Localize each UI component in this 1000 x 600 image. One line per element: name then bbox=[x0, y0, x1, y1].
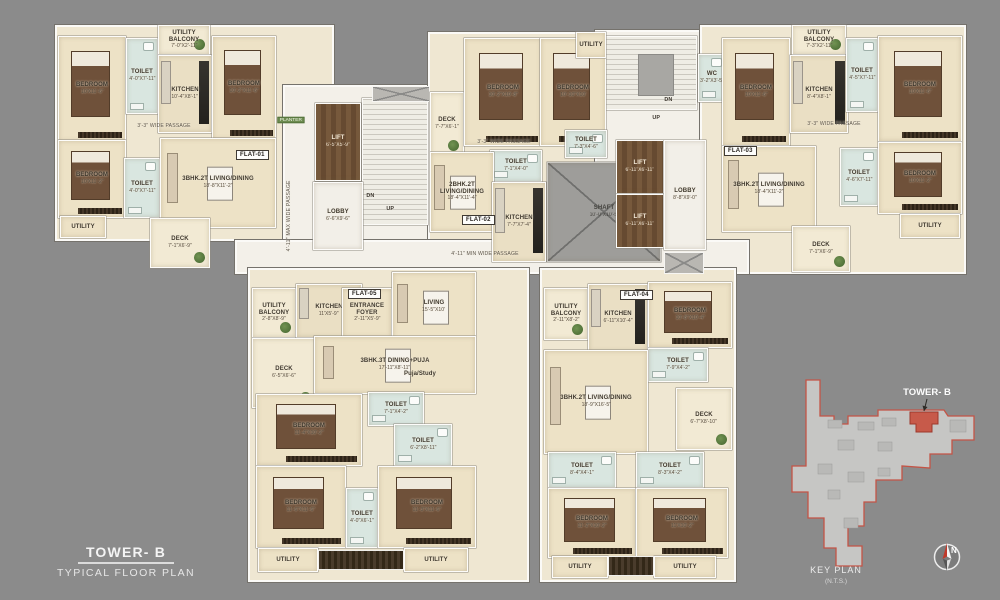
room-dims: 10'-4"X8'-1" bbox=[172, 95, 199, 101]
room-label: BEDROOM bbox=[293, 423, 325, 430]
room-label: UTILITY BALCONY bbox=[545, 304, 587, 318]
room-label: UTILITY bbox=[71, 224, 94, 231]
flat04-living-dining: 3BHK.2T LIVING/DINING 18'-9"X16'-5" bbox=[544, 350, 648, 454]
flat05-bedroom-3: BEDROOM 11'-3"X11'-6" bbox=[378, 466, 476, 548]
room-dims: 6'-5"X6'-6" bbox=[272, 374, 296, 380]
room-label: ENTRANCE FOYER bbox=[343, 303, 391, 317]
stair-landing bbox=[638, 54, 674, 96]
room-label: TOILET bbox=[571, 463, 593, 470]
flat05-bedroom-2: BEDROOM 11'-6"X11'-6" bbox=[256, 466, 346, 548]
room-label: TOILET bbox=[412, 438, 434, 445]
floor-plan-canvas: BEDROOM 10'X11'-6" TOILET 4'-0"X7'-11" U… bbox=[0, 0, 1000, 600]
room-dims: 18'-9"X16'-5" bbox=[581, 403, 610, 409]
room-dims: 15'-5"X10' bbox=[422, 308, 445, 314]
wardrobe-strip bbox=[318, 550, 404, 570]
flat03-utility: UTILITY bbox=[900, 214, 960, 238]
flat05-bedroom-1: BEDROOM 11'-4"X10'-2" bbox=[256, 394, 362, 466]
room-dims: 4'-0"X7'-11" bbox=[129, 189, 155, 195]
passage-label-left-vertical: 4'-11" MAX WIDE PASSAGE bbox=[286, 154, 291, 252]
room-dims: 18'-4"X11'-2" bbox=[754, 190, 783, 196]
room-dims: 18'-8"X11'-2" bbox=[203, 184, 232, 190]
flat01-deck: DECK 7'-1"X6'-9" bbox=[150, 218, 210, 268]
flat04-utility-2: UTILITY bbox=[654, 556, 716, 578]
room-dims: 6'-5"X5'-9" bbox=[326, 143, 350, 149]
room-dims: 10'X11'-2" bbox=[909, 179, 932, 185]
title-block: TOWER- B TYPICAL FLOOR PLAN bbox=[36, 544, 216, 579]
room-label: WC bbox=[707, 71, 717, 78]
passage-label-center-wing: 3'-3" WIDE PASSAGE bbox=[460, 139, 548, 144]
room-label: LIFT bbox=[633, 214, 646, 221]
room-label: BEDROOM bbox=[557, 85, 589, 92]
lift-1: LIFT 6'-5"X5'-9" bbox=[315, 103, 361, 181]
flat04-utility-1: UTILITY bbox=[552, 556, 608, 578]
room-label: UTILITY bbox=[918, 223, 941, 230]
page-title: TOWER- B bbox=[78, 544, 174, 564]
room-dims: 6'-11"X10'-4" bbox=[603, 319, 632, 325]
flat04-toilet-3: TOILET 8'-3"X4'-2" bbox=[636, 452, 704, 488]
room-label: TOILET bbox=[131, 69, 153, 76]
flat03-toilet-1: TOILET 4'-5"X7'-11" bbox=[846, 38, 878, 112]
room-dims: 2'-11"X8'-2" bbox=[553, 318, 579, 324]
room-label: DECK bbox=[695, 412, 712, 419]
room-label: BEDROOM bbox=[228, 81, 260, 88]
flat02-badge: FLAT-02 bbox=[462, 215, 495, 225]
room-label: TOILET bbox=[659, 463, 681, 470]
flat04-bedroom-3: BEDROOM 11'X10'-2" bbox=[636, 488, 728, 558]
stairs-dn-label: DN bbox=[664, 97, 672, 102]
room-dims: 2'-11"X5'-9" bbox=[354, 317, 380, 323]
room-dims: 10'-8"X10'-4" bbox=[675, 316, 704, 322]
room-label: KITCHEN bbox=[315, 304, 342, 311]
room-label: DECK bbox=[275, 366, 292, 373]
flat03-utility-balcony: UTILITY BALCONY 7'-3"X2'-11" bbox=[792, 25, 846, 55]
keyplan-tower-label: TOWER- B bbox=[903, 387, 951, 398]
room-label: BEDROOM bbox=[740, 85, 772, 92]
flat05-toilet-3: TOILET 4'-0"X6'-1" bbox=[346, 488, 378, 548]
flat01-bedroom-3: BEDROOM 10'X11'-2" bbox=[58, 140, 126, 218]
flat01-bedroom-2: BEDROOM 10'-2"X11'-6" bbox=[212, 36, 276, 140]
staircase-left bbox=[362, 98, 428, 225]
flat01-kitchen: KITCHEN 10'-4"X8'-1" bbox=[158, 55, 212, 133]
lobby-2: LOBBY 8'-8"X9'-0" bbox=[664, 140, 706, 250]
room-dims: 10'X11'-6" bbox=[81, 90, 104, 96]
flat02-kitchen: KITCHEN 7'-7"X7'-4" bbox=[492, 182, 546, 262]
flat04-utility-balcony: UTILITY BALCONY 2'-11"X8'-2" bbox=[544, 288, 588, 340]
room-label: KITCHEN bbox=[604, 311, 631, 318]
room-dims: 7'-7"X6'-1" bbox=[435, 125, 459, 131]
room-dims: 18'-4"X11'-4" bbox=[447, 196, 476, 202]
room-label: BEDROOM bbox=[285, 500, 317, 507]
flat02-bedroom-1: BEDROOM 10'-2"X10'-8" bbox=[464, 38, 542, 146]
room-label: UTILITY BALCONY bbox=[159, 30, 209, 44]
room-label: UTILITY BALCONY bbox=[793, 30, 845, 44]
flat01-toilet-2: TOILET 4'-0"X7'-11" bbox=[124, 158, 160, 218]
flat04-bedroom-1: BEDROOM 10'-8"X10'-4" bbox=[648, 282, 732, 348]
room-label: 3BHK.2T LIVING/DINING bbox=[733, 182, 804, 189]
room-dims: 10'-2"X11'-6" bbox=[229, 89, 258, 95]
room-dims: 6'-2"X8'-11" bbox=[410, 446, 436, 452]
room-label: TOILET bbox=[505, 159, 527, 166]
room-dims: 11'-4"X10'-2" bbox=[294, 431, 323, 437]
flat05-toilet-1: TOILET 7'-1"X4'-2" bbox=[368, 392, 424, 426]
room-dims: 10'-2"X10'-8" bbox=[488, 93, 517, 99]
flat05-utility-2: UTILITY bbox=[404, 548, 468, 572]
flat01-utility: UTILITY bbox=[60, 216, 106, 238]
room-dims: 6'-11"X6'-11" bbox=[626, 222, 655, 228]
room-label: UTILITY BALCONY bbox=[253, 303, 295, 317]
room-label: BEDROOM bbox=[674, 308, 706, 315]
room-dims: 10'X11'-6" bbox=[745, 93, 768, 99]
flat03-toilet-2: TOILET 4'-6"X7'-11" bbox=[840, 148, 878, 206]
flat04-bedroom-2: BEDROOM 11'-2"X10'-2" bbox=[548, 488, 636, 558]
flat05-living: LIVING 15'-5"X10' bbox=[392, 272, 476, 342]
room-label: DECK bbox=[171, 236, 188, 243]
flat05-utility-balcony: UTILITY BALCONY 2'-8"X8'-9" bbox=[252, 288, 296, 338]
room-label: UTILITY bbox=[568, 564, 591, 571]
room-dims: 3'-2"X3'-5" bbox=[700, 79, 724, 85]
room-label: UTILITY bbox=[579, 42, 602, 49]
room-label: 2BHK.2T LIVING/DINING bbox=[431, 182, 493, 196]
flat02-utility: UTILITY bbox=[576, 32, 606, 58]
room-label: TOILET bbox=[667, 358, 689, 365]
room-label: TOILET bbox=[385, 402, 407, 409]
room-label: TOILET bbox=[575, 137, 597, 144]
room-label: TOILET bbox=[131, 181, 153, 188]
room-dims: 7'-3"X4'-6" bbox=[574, 145, 598, 151]
lobby-1: LOBBY 6'-6"X9'-6" bbox=[313, 182, 363, 250]
room-label: BEDROOM bbox=[904, 82, 936, 89]
room-label: BEDROOM bbox=[76, 172, 108, 179]
flat03-bedroom-2: BEDROOM 10'X11'-6" bbox=[878, 36, 962, 142]
room-dims: 11'X10'-2" bbox=[671, 524, 694, 530]
flat05-badge: FLAT-05 bbox=[348, 289, 381, 299]
flat03-deck: DECK 7'-1"X6'-9" bbox=[792, 226, 850, 272]
room-label: SHAFT bbox=[594, 205, 615, 212]
room-dims: 10'X11'-2" bbox=[81, 180, 104, 186]
flat01-badge: FLAT-01 bbox=[236, 150, 269, 160]
room-label: TOILET bbox=[351, 511, 373, 518]
room-label: BEDROOM bbox=[904, 171, 936, 178]
room-label: UTILITY bbox=[424, 557, 447, 564]
stairs-dn-label: DN bbox=[366, 193, 374, 198]
key-plan: TOWER- B KEY PLAN (N.T.S.) N bbox=[778, 368, 993, 588]
flat02-toilet-2: TOILET 7'-3"X4'-6" bbox=[565, 130, 607, 158]
room-label: DECK bbox=[812, 242, 829, 249]
room-dims: 10'X11'-6" bbox=[909, 90, 932, 96]
room-dims: 7'-1"X6'-9" bbox=[809, 250, 833, 256]
room-label: UTILITY bbox=[276, 557, 299, 564]
room-dims: 11'X5'-9" bbox=[319, 312, 339, 318]
room-dims: 8'-4"X8'-1" bbox=[807, 95, 831, 101]
flat05-utility-1: UTILITY bbox=[258, 548, 318, 572]
flat04-badge: FLAT-04 bbox=[620, 290, 653, 300]
room-label: UTILITY bbox=[673, 564, 696, 571]
room-label: TOILET bbox=[851, 68, 873, 75]
planter-badge: PLANTER bbox=[277, 117, 304, 123]
room-label: KITCHEN bbox=[805, 87, 832, 94]
flat05-puja-study: Puja/Study bbox=[388, 360, 452, 388]
room-dims: 7'-0"X2'-11" bbox=[171, 44, 197, 50]
room-label: LOBBY bbox=[327, 209, 349, 216]
flat03-bedroom-3: BEDROOM 10'X11'-2" bbox=[878, 142, 962, 214]
room-dims: 4'-0"X6'-1" bbox=[350, 519, 374, 525]
room-dims: 7'-1"X4'-0" bbox=[504, 167, 528, 173]
room-dims: 10'-10"X10' bbox=[560, 93, 586, 99]
passage-label-spine: 4'-11" MIN WIDE PASSAGE bbox=[409, 251, 562, 256]
flat02-toilet-1: TOILET 7'-1"X4'-0" bbox=[490, 150, 542, 182]
room-dims: 6'-11"X6'-11" bbox=[626, 168, 655, 174]
room-label: BEDROOM bbox=[576, 516, 608, 523]
room-label: BEDROOM bbox=[666, 516, 698, 523]
room-dims: 7'-1"X4'-2" bbox=[384, 410, 408, 416]
room-dims: 8'-3"X4'-2" bbox=[658, 471, 682, 477]
room-label: BEDROOM bbox=[76, 82, 108, 89]
compass-n-label: N bbox=[951, 546, 957, 555]
flat03-living-dining: 3BHK.2T LIVING/DINING 18'-4"X11'-2" bbox=[722, 146, 816, 232]
flat03-bedroom-1: BEDROOM 10'X11'-6" bbox=[722, 38, 790, 146]
room-label: 3BHK.2T LIVING/DINING bbox=[182, 176, 253, 183]
room-dims: 10'-0"X10'-5" bbox=[589, 213, 618, 219]
duct-box bbox=[372, 86, 430, 102]
room-label: KITCHEN bbox=[505, 215, 532, 222]
lift-3: LIFT 6'-11"X6'-11" bbox=[616, 194, 664, 248]
stairs-up-label: UP bbox=[386, 206, 394, 211]
room-label: LIVING bbox=[424, 300, 445, 307]
room-dims: 6'-6"X9'-6" bbox=[326, 217, 350, 223]
flat04-toilet-1: TOILET 7'-9"X4'-2" bbox=[648, 348, 708, 382]
room-dims: 7'-7"X7'-4" bbox=[507, 223, 531, 229]
keyplan-heading: KEY PLAN bbox=[810, 565, 862, 575]
flat05-toilet-2: TOILET 6'-2"X8'-11" bbox=[394, 424, 452, 466]
room-label: LIFT bbox=[331, 135, 344, 142]
room-dims: 4'-5"X7'-11" bbox=[849, 76, 875, 82]
room-label: DECK bbox=[438, 117, 455, 124]
keyplan-nts: (N.T.S.) bbox=[825, 578, 847, 585]
room-dims: 8'-8"X9'-0" bbox=[673, 196, 697, 202]
flat01-toilet-1: TOILET 4'-0"X7'-11" bbox=[126, 38, 158, 114]
room-dims: 6'-7"X8'-10" bbox=[691, 420, 718, 426]
room-dims: 8'-4"X4'-1" bbox=[570, 471, 594, 477]
flat01-utility-balcony: UTILITY BALCONY 7'-0"X2'-11" bbox=[158, 25, 210, 55]
room-label: LOBBY bbox=[674, 188, 696, 195]
passage-label-right-wing: 3'-3" WIDE PASSAGE bbox=[790, 121, 878, 126]
room-label: LIFT bbox=[633, 160, 646, 167]
stairs-up-label: UP bbox=[652, 115, 660, 120]
wardrobe-strip bbox=[608, 556, 654, 576]
room-dims: 4'-0"X7'-11" bbox=[129, 77, 155, 83]
room-dims: 4'-6"X7'-11" bbox=[846, 178, 872, 184]
lift-2: LIFT 6'-11"X6'-11" bbox=[616, 140, 664, 194]
room-label: BEDROOM bbox=[487, 85, 519, 92]
room-label: BEDROOM bbox=[411, 500, 443, 507]
duct-box bbox=[664, 252, 704, 274]
room-label: 3BHK.2T LIVING/DINING bbox=[560, 395, 631, 402]
compass-icon: N bbox=[935, 543, 960, 571]
room-dims: 7'-1"X6'-9" bbox=[168, 244, 192, 250]
room-dims: 7'-9"X4'-2" bbox=[666, 366, 690, 372]
room-dims: 11'-6"X11'-6" bbox=[287, 508, 316, 514]
page-subtitle: TYPICAL FLOOR PLAN bbox=[36, 567, 216, 579]
room-dims: 11'-3"X11'-6" bbox=[413, 508, 442, 514]
room-label: TOILET bbox=[848, 170, 870, 177]
flat04-deck: DECK 6'-7"X8'-10" bbox=[676, 388, 732, 450]
room-label: Puja/Study bbox=[404, 371, 436, 378]
room-dims: 7'-3"X2'-11" bbox=[806, 44, 832, 50]
room-dims: 11'-2"X10'-2" bbox=[577, 524, 606, 530]
flat04-toilet-2: TOILET 8'-4"X4'-1" bbox=[548, 452, 616, 488]
flat03-badge: FLAT-03 bbox=[724, 146, 757, 156]
passage-label-left-wing: 3'-3" WIDE PASSAGE bbox=[120, 123, 208, 128]
flat01-bedroom-1: BEDROOM 10'X11'-6" bbox=[58, 36, 126, 142]
flat02-deck: DECK 7'-7"X6'-1" bbox=[430, 92, 464, 156]
room-label: KITCHEN bbox=[171, 87, 198, 94]
room-dims: 2'-8"X8'-9" bbox=[262, 317, 286, 323]
